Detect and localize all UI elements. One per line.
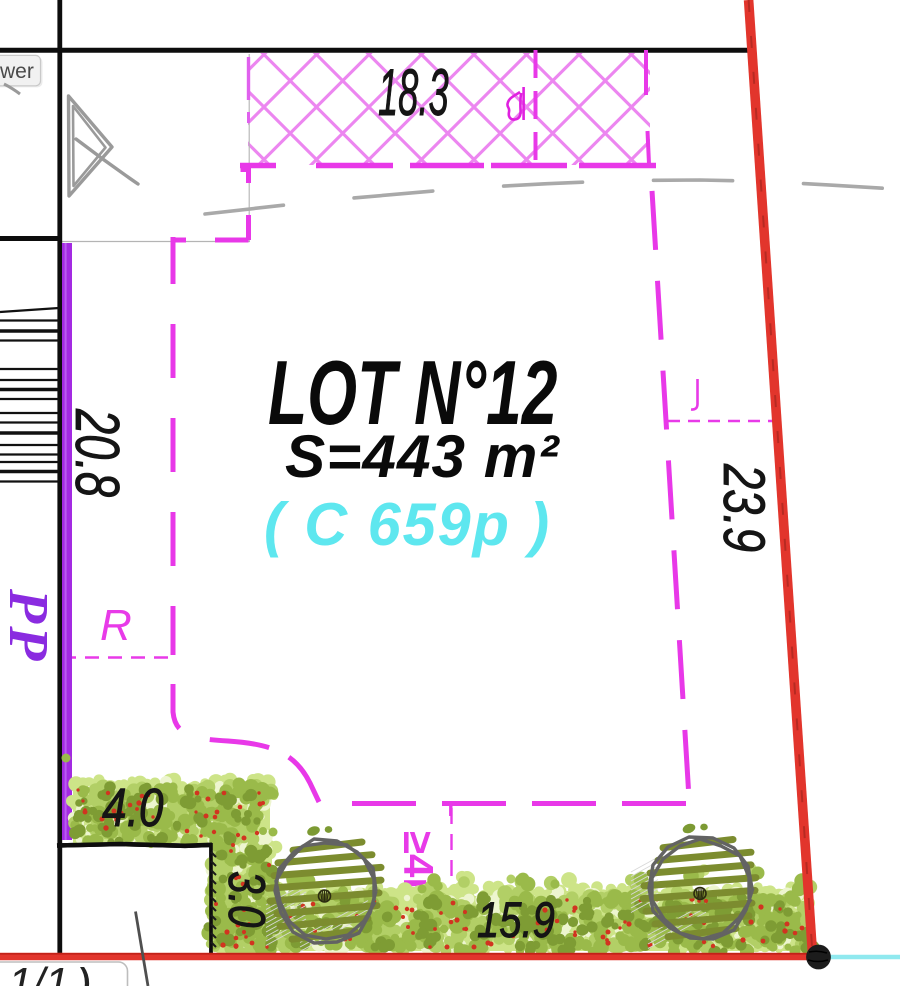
svg-text:PP: PP [0,588,59,663]
svg-text:23.9: 23.9 [711,463,776,552]
svg-text:wer: wer [0,60,34,83]
svg-text:4.0: 4.0 [102,778,164,838]
svg-text:( C 659p ): ( C 659p ) [264,491,551,558]
svg-text:1/1: 1/1 [8,959,69,986]
svg-text:15.9: 15.9 [477,892,555,948]
svg-text:S=443 m²: S=443 m² [285,423,560,490]
svg-text:18.3: 18.3 [378,57,449,130]
svg-text:3.0: 3.0 [218,871,276,927]
svg-text:R: R [100,601,132,650]
svg-text:20.8: 20.8 [62,408,132,497]
